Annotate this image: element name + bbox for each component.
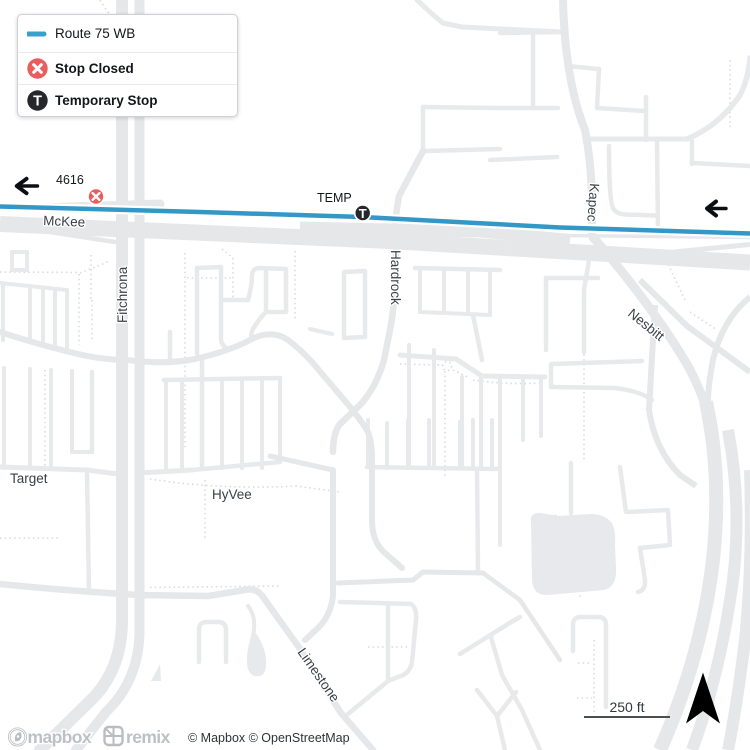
svg-text:mapbox: mapbox bbox=[28, 727, 92, 747]
svg-text:T: T bbox=[359, 206, 367, 221]
svg-text:250 ft: 250 ft bbox=[609, 699, 644, 715]
svg-text:remix: remix bbox=[126, 727, 171, 747]
svg-text:4616: 4616 bbox=[56, 173, 84, 187]
svg-text:HyVee: HyVee bbox=[212, 487, 252, 502]
svg-text:McKee: McKee bbox=[43, 213, 86, 230]
svg-text:Kapec: Kapec bbox=[584, 183, 602, 222]
svg-text:T: T bbox=[33, 94, 42, 110]
svg-text:Target: Target bbox=[10, 471, 48, 486]
svg-text:© Mapbox © OpenStreetMap: © Mapbox © OpenStreetMap bbox=[188, 731, 350, 745]
svg-text:Fitchrona: Fitchrona bbox=[115, 266, 130, 323]
svg-text:TEMP: TEMP bbox=[317, 191, 352, 205]
svg-text:Hardrock: Hardrock bbox=[388, 250, 403, 305]
